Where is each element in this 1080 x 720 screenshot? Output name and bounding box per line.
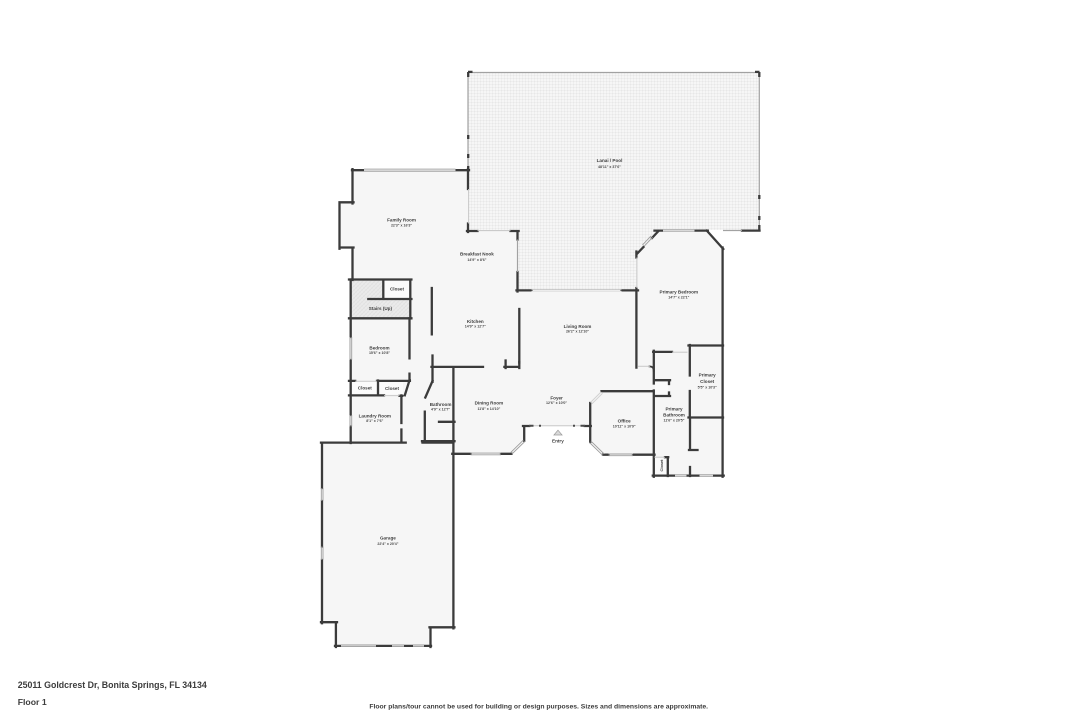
svg-text:Breakfast Nook: Breakfast Nook — [460, 252, 494, 257]
svg-text:Lanai / Pool: Lanai / Pool — [597, 158, 623, 163]
svg-text:Bathroom: Bathroom — [430, 402, 452, 407]
svg-text:22'3" x 16'3": 22'3" x 16'3" — [391, 224, 412, 228]
svg-text:22'4" x 20'4": 22'4" x 20'4" — [377, 542, 398, 546]
svg-text:Kitchen: Kitchen — [467, 319, 484, 324]
svg-text:15'6" x 10'8": 15'6" x 10'8" — [369, 351, 390, 355]
svg-text:Bathroom: Bathroom — [663, 413, 685, 418]
svg-text:Entry: Entry — [552, 439, 564, 444]
svg-text:8'1" x 7'6": 8'1" x 7'6" — [366, 419, 383, 423]
svg-text:4'9" x 12'7": 4'9" x 12'7" — [431, 408, 450, 412]
svg-text:14'7" x 22'1": 14'7" x 22'1" — [668, 295, 689, 299]
svg-text:Foyer: Foyer — [550, 396, 563, 401]
svg-text:Closet: Closet — [390, 287, 405, 292]
svg-text:Floor 1: Floor 1 — [18, 697, 47, 707]
svg-text:Closet: Closet — [700, 379, 715, 384]
svg-text:14'9" x 8'6": 14'9" x 8'6" — [467, 258, 486, 262]
svg-text:Floor plans/tour cannot be use: Floor plans/tour cannot be used for buil… — [369, 704, 708, 711]
svg-text:25011 Goldcrest Dr, Bonita Spr: 25011 Goldcrest Dr, Bonita Springs, FL 3… — [18, 680, 207, 690]
svg-text:Closet: Closet — [358, 386, 373, 391]
svg-text:Closet: Closet — [385, 386, 400, 391]
svg-text:12'6" x 10'0": 12'6" x 10'0" — [546, 401, 567, 405]
svg-text:11'8" x 14'10": 11'8" x 14'10" — [477, 407, 500, 411]
svg-text:Stairs (Up): Stairs (Up) — [369, 306, 393, 311]
svg-text:26'2" x 12'10": 26'2" x 12'10" — [566, 330, 589, 334]
svg-text:Closet: Closet — [659, 459, 664, 472]
svg-text:48'11" x 37'6": 48'11" x 37'6" — [598, 165, 621, 169]
svg-text:Primary Bedroom: Primary Bedroom — [660, 290, 699, 295]
svg-text:11'6" x 20'5": 11'6" x 20'5" — [664, 419, 685, 423]
svg-text:Laundry Room: Laundry Room — [359, 414, 391, 419]
svg-text:Bedroom: Bedroom — [369, 346, 389, 351]
svg-text:Primary: Primary — [699, 373, 717, 378]
svg-text:Living Room: Living Room — [564, 324, 592, 329]
svg-text:10'11" x 10'9": 10'11" x 10'9" — [613, 424, 636, 428]
svg-text:5'5" x 10'3": 5'5" x 10'3" — [698, 385, 717, 389]
svg-text:Office: Office — [618, 418, 631, 423]
svg-text:Dining Room: Dining Room — [475, 401, 504, 406]
svg-text:Family Room: Family Room — [387, 218, 416, 223]
svg-text:14'9" x 12'7": 14'9" x 12'7" — [465, 325, 486, 329]
svg-text:Garage: Garage — [380, 536, 396, 541]
svg-text:Primary: Primary — [665, 406, 683, 411]
